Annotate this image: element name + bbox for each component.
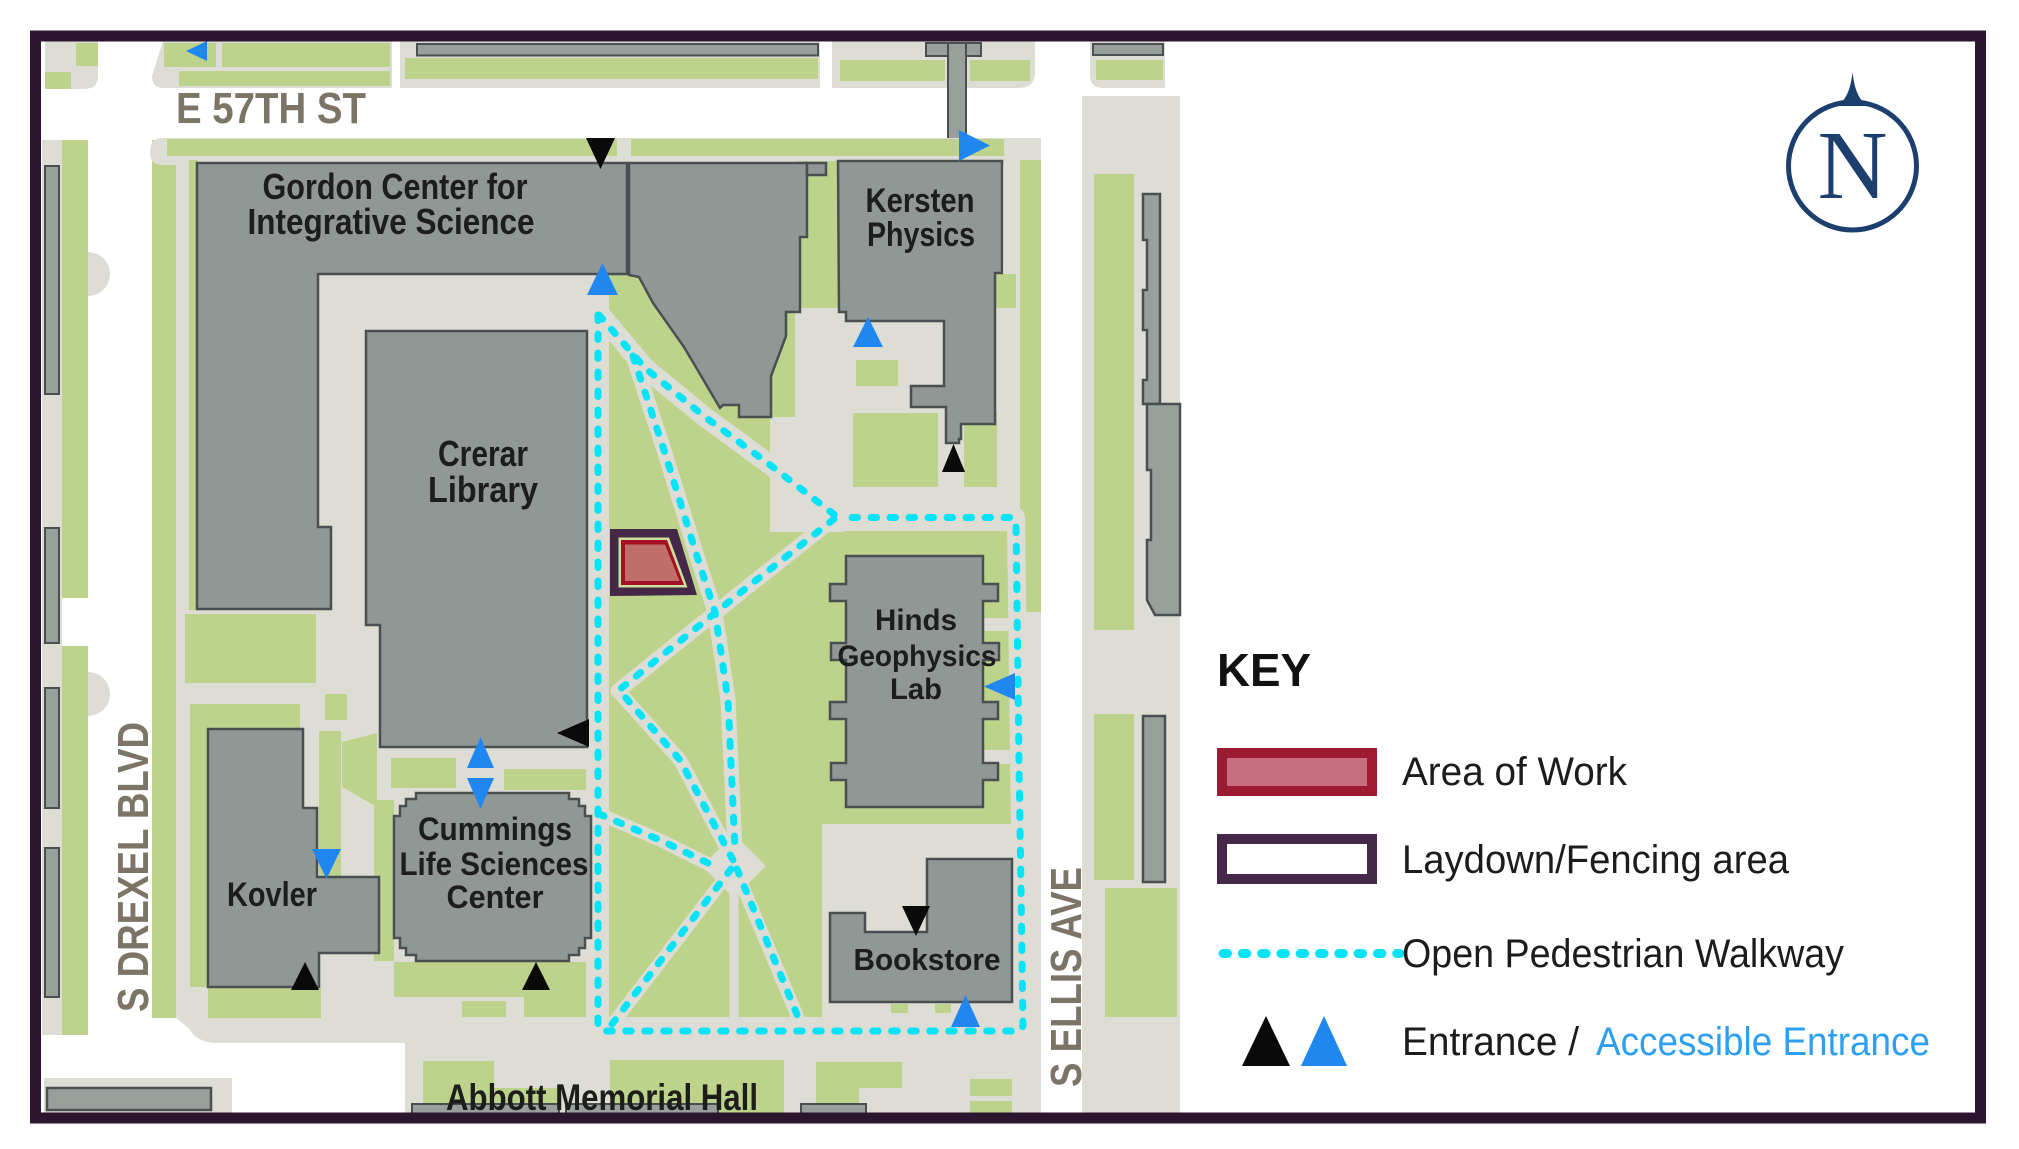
svg-text:Center: Center <box>447 879 544 915</box>
svg-text:E 57TH ST: E 57TH ST <box>176 84 366 133</box>
svg-text:Library: Library <box>428 469 538 510</box>
svg-text:Kersten: Kersten <box>866 182 975 220</box>
svg-text:Laydown/Fencing area: Laydown/Fencing area <box>1402 838 1790 882</box>
svg-text:Entrance /: Entrance / <box>1402 1020 1580 1064</box>
svg-text:Abbott Memorial Hall: Abbott Memorial Hall <box>446 1077 758 1118</box>
svg-text:Life Sciences: Life Sciences <box>400 846 589 882</box>
svg-text:Open Pedestrian Walkway: Open Pedestrian Walkway <box>1402 932 1844 976</box>
svg-text:N: N <box>1817 112 1887 219</box>
svg-text:Area of Work: Area of Work <box>1402 750 1628 794</box>
svg-text:Bookstore: Bookstore <box>854 942 1001 977</box>
svg-text:KEY: KEY <box>1217 644 1311 696</box>
svg-text:S ELLIS AVE: S ELLIS AVE <box>1042 867 1091 1087</box>
svg-text:Accessible Entrance: Accessible Entrance <box>1596 1020 1930 1064</box>
svg-text:Integrative Science: Integrative Science <box>248 201 535 242</box>
svg-text:Geophysics: Geophysics <box>838 640 997 673</box>
svg-text:Crerar: Crerar <box>438 433 528 474</box>
svg-text:Physics: Physics <box>867 216 975 254</box>
svg-text:Lab: Lab <box>890 673 942 706</box>
svg-text:Kovler: Kovler <box>227 876 317 914</box>
svg-text:Cummings: Cummings <box>418 811 572 847</box>
svg-text:S DREXEL BLVD: S DREXEL BLVD <box>109 722 158 1012</box>
svg-text:Hinds: Hinds <box>875 604 957 637</box>
